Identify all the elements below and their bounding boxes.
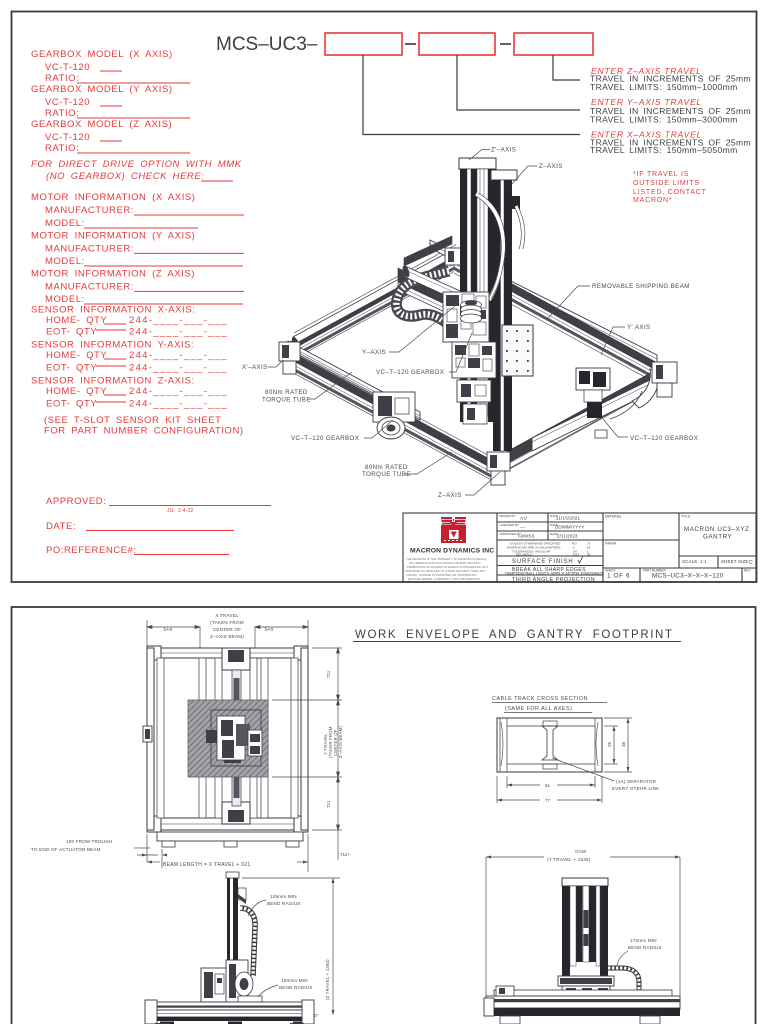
svg-text:GEARBOX MODEL (Z AXIS): GEARBOX MODEL (Z AXIS) [31,119,172,130]
svg-text:MOTOR INFORMATION (Z AXIS): MOTOR INFORMATION (Z AXIS) [31,269,195,280]
svg-text:SCALE 1:1: SCALE 1:1 [682,559,707,564]
svg-text:SHEET SIZE: SHEET SIZE [721,559,749,564]
svg-text:DEVICES HEREIN. A PROPERTY THI: DEVICES HEREIN. A PROPERTY THIS INFORMAT… [408,577,481,581]
svg-text:RATIO:: RATIO: [45,108,79,119]
svg-text:(Z TRAVEL + 1350): (Z TRAVEL + 1350) [325,959,330,1000]
svg-text:(TAKEN FROM: (TAKEN FROM [210,620,244,625]
svg-text:MOTOR INFORMATION (Y AXIS): MOTOR INFORMATION (Y AXIS) [31,231,195,242]
svg-text:CHECKED BY: CHECKED BY [500,523,520,527]
svg-text:77: 77 [545,798,551,803]
svg-text:CONVEY LICENSE TO PATENTED OR: CONVEY LICENSE TO PATENTED OR PROPRIETAR… [406,573,477,577]
svg-text:TRANSFER OF ARTICLES TO OTHER: TRANSFER OF ARTICLES TO OTHER SECURITY D… [405,569,486,573]
svg-text:11/15/2021: 11/15/2021 [556,516,580,521]
svg-text:VC–T–120 GEARBOX: VC–T–120 GEARBOX [291,435,359,442]
svg-text:DATE:: DATE: [46,521,76,532]
svg-text:––: –– [520,525,526,530]
svg-text:BEAM LENGTH = X TRAVEL + 921: BEAM LENGTH = X TRAVEL + 921 [163,862,251,868]
svg-text:25: 25 [607,741,612,747]
svg-text:GEARBOX MODEL (X AXIS): GEARBOX MODEL (X AXIS) [31,49,173,60]
svg-text:Z–AXIS BEAM): Z–AXIS BEAM) [338,726,343,758]
svg-text:GANTRY: GANTRY [703,534,732,541]
svg-text:244-____-___-___: 244-____-___-___ [129,363,228,374]
svg-text:(NO GEARBOX) CHECK HERE:: (NO GEARBOX) CHECK HERE: [46,171,204,182]
svg-text:MODEL:: MODEL: [45,218,85,229]
svg-text:DIMENSIONAL UNITS APPLY AFTER: DIMENSIONAL UNITS APPLY AFTER FINISHING [505,571,603,576]
svg-text:Z'–AXIS: Z'–AXIS [491,147,516,154]
svg-text:Y' AXIS: Y' AXIS [627,324,651,331]
svg-text:.XXX: .XXX [572,553,579,557]
svg-text:TORQUE TUBE: TORQUE TUBE [262,397,311,404]
svg-text:5+n: 5+n [163,627,172,633]
svg-text:VC–T–120 GEARBOX: VC–T–120 GEARBOX [630,435,698,442]
svg-text:BEND RADIUS: BEND RADIUS [267,901,301,906]
svg-text:244-____-___-___: 244-____-___-___ [129,350,228,361]
svg-text:LISTED, CONTACT: LISTED, CONTACT [633,189,707,196]
svg-text:HOME- QTY: HOME- QTY [46,386,107,397]
svg-text:FOR DIRECT DRIVE OPTION WITH M: FOR DIRECT DRIVE OPTION WITH MMK [31,159,242,170]
svg-text:WORK ENVELOPE AND GANTRY FOOTP: WORK ENVELOPE AND GANTRY FOOTPRINT [355,629,674,641]
svg-text:MANUFACTURER:: MANUFACTURER: [45,243,134,254]
svg-text:*IF TRAVEL IS: *IF TRAVEL IS [633,171,689,178]
svg-text:JG 2-4-22: JG 2-4-22 [167,508,194,514]
svg-text:711: 711 [326,800,331,808]
svg-text:TRAVEL LIMITS: 150mm–3000mm: TRAVEL LIMITS: 150mm–3000mm [590,115,738,125]
svg-text:MANUFACTURER:: MANUFACTURER: [45,205,134,216]
svg-text:80Nm RATED: 80Nm RATED [365,464,408,471]
svg-text:5+n: 5+n [264,627,273,633]
svg-text:TORQUE TUBE: TORQUE TUBE [362,471,411,478]
svg-text:RATIO:: RATIO: [45,143,79,154]
svg-text:TO END OF ACTUATOR BEAM: TO END OF ACTUATOR BEAM [31,847,101,852]
svg-text:TRAVEL LIMITS: 150mm–1000mm: TRAVEL LIMITS: 150mm–1000mm [590,82,738,92]
svg-text:THIRD ANGLE PROJECTION: THIRD ANGLE PROJECTION [512,577,595,583]
svg-text:711+: 711+ [340,852,350,857]
svg-text:RATIO:: RATIO: [45,73,79,84]
svg-text:SENSOR INFORMATION Y-AXIS:: SENSOR INFORMATION Y-AXIS: [31,339,194,350]
svg-text:711: 711 [326,670,331,678]
svg-text:244-____-___-___: 244-____-___-___ [129,315,228,326]
svg-text:DECIMALS: DECIMALS [516,553,532,557]
svg-text:MODEL:: MODEL: [45,294,85,305]
svg-text:100mm MIN: 100mm MIN [281,978,308,983]
svg-text:OAW: OAW [575,849,587,854]
svg-text:CENTER OF: CENTER OF [213,627,241,632]
svg-text:INC. REPRODUCTION IN WHOLE OR: INC. REPRODUCTION IN WHOLE OR PART WITHO… [409,561,481,565]
svg-text:80Nm RATED: 80Nm RATED [265,389,308,396]
svg-text:HOME- QTY: HOME- QTY [46,350,107,361]
svg-text:HOME- QTY: HOME- QTY [46,315,107,326]
svg-text:APPROVED:: APPROVED: [46,496,106,507]
svg-text:.05: .05 [586,553,591,557]
svg-text:C: C [749,560,753,566]
svg-text:Z–AXIS BEAM): Z–AXIS BEAM) [210,634,244,639]
svg-text:244-____-___-___: 244-____-___-___ [129,399,228,410]
svg-text:VC–T–120 GEARBOX: VC–T–120 GEARBOX [376,369,444,376]
svg-text:MOTOR INFORMATION (X AXIS): MOTOR INFORMATION (X AXIS) [31,192,195,203]
svg-text:MACRON UC3–XYZ: MACRON UC3–XYZ [684,526,749,533]
svg-text:61: 61 [545,783,551,788]
svg-text:MANUFACTURER:: MANUFACTURER: [45,281,134,292]
svg-text:DD/MM/YYYY: DD/MM/YYYY [555,525,585,530]
svg-text:PO:REFERENCE#:: PO:REFERENCE#: [46,545,137,556]
svg-text:2/11/2023: 2/11/2023 [557,534,578,539]
svg-text:DRAWN BY: DRAWN BY [500,514,516,518]
svg-text:(Y TRAVEL + 1535): (Y TRAVEL + 1535) [547,857,591,862]
svg-text:SURFACE FINISH: SURFACE FINISH [512,559,574,565]
svg-text:100 FROM TROUGH: 100 FROM TROUGH [66,839,113,844]
svg-text:X'–AXIS: X'–AXIS [242,364,268,371]
svg-text:(1A) SEPARATOR: (1A) SEPARATOR [616,779,657,784]
svg-text:244-____-___-___: 244-____-___-___ [129,386,228,397]
svg-text:Z–AXIS: Z–AXIS [539,163,563,170]
svg-text:Y–AXIS: Y–AXIS [362,349,386,356]
svg-text:MCS–UC3–X–X–X–120: MCS–UC3–X–X–X–120 [652,573,724,580]
svg-text:37: 37 [313,1013,319,1018]
svg-text:CABLE TRACK CROSS SECTION: CABLE TRACK CROSS SECTION [492,696,588,702]
svg-text:FOR PART NUMBER CONFIGURATION): FOR PART NUMBER CONFIGURATION) [44,426,244,437]
svg-text:EOT- QTY: EOT- QTY [46,327,97,338]
svg-text:38: 38 [621,741,626,747]
svg-text:X TRAVEL: X TRAVEL [215,613,239,618]
svg-text:EOT- QTY: EOT- QTY [46,399,97,410]
svg-text:BEND RADIUS: BEND RADIUS [279,985,313,990]
svg-text:AWMSS: AWMSS [518,534,535,539]
svg-text:244-____-___-___: 244-____-___-___ [129,327,228,338]
svg-text:1 OF 6: 1 OF 6 [607,573,630,580]
svg-text:FINISH: FINISH [605,542,617,546]
svg-text:175mm MIN: 175mm MIN [630,938,657,943]
svg-text:MCS–UC3–: MCS–UC3– [216,34,318,55]
svg-text:BEND RADIUS: BEND RADIUS [628,945,662,950]
svg-text:125mm MIN: 125mm MIN [270,894,297,899]
svg-text:EVERY OTEHR LINK: EVERY OTEHR LINK [612,786,660,791]
svg-text:VC-T-120: VC-T-120 [45,132,90,143]
svg-text:TRAVEL LIMITS: 150mm–5050mm: TRAVEL LIMITS: 150mm–5050mm [590,145,738,155]
svg-text:REV: REV [744,569,751,573]
svg-text:(SEE T-SLOT SENSOR KIT SHEET: (SEE T-SLOT SENSOR KIT SHEET [44,415,221,426]
svg-text:(SAME FOR ALL AXES): (SAME FOR ALL AXES) [505,706,572,712]
svg-text:THE DRAWING IS THE PROPERTY OF: THE DRAWING IS THE PROPERTY OF MACRON DY… [406,557,487,561]
svg-text:MACRON DYNAMICS INC: MACRON DYNAMICS INC [410,548,494,555]
svg-text:EOT- QTY: EOT- QTY [46,363,97,374]
svg-text:MODEL:: MODEL: [45,256,85,267]
svg-text:GEARBOX MODEL (Y AXIS): GEARBOX MODEL (Y AXIS) [31,84,173,95]
svg-text:AU: AU [520,516,527,521]
svg-text:PERMISSION OF MACRON DYNAMICS: PERMISSION OF MACRON DYNAMICS IS PROHIBI… [407,565,488,569]
svg-text:OUTSIDE LIMITS: OUTSIDE LIMITS [633,180,700,187]
svg-text:VC-T-120: VC-T-120 [45,62,90,73]
svg-text:VC-T-120: VC-T-120 [45,97,90,108]
svg-text:Z–AXIS: Z–AXIS [438,492,462,499]
svg-text:SENSOR INFORMATION Z-AXIS:: SENSOR INFORMATION Z-AXIS: [31,375,195,386]
svg-text:REMOVABLE SHIPPING BEAM: REMOVABLE SHIPPING BEAM [592,283,690,290]
svg-text:MACRON*: MACRON* [633,197,672,204]
svg-text:TITLE: TITLE [681,515,691,519]
svg-text:MATERIAL: MATERIAL [605,515,622,519]
